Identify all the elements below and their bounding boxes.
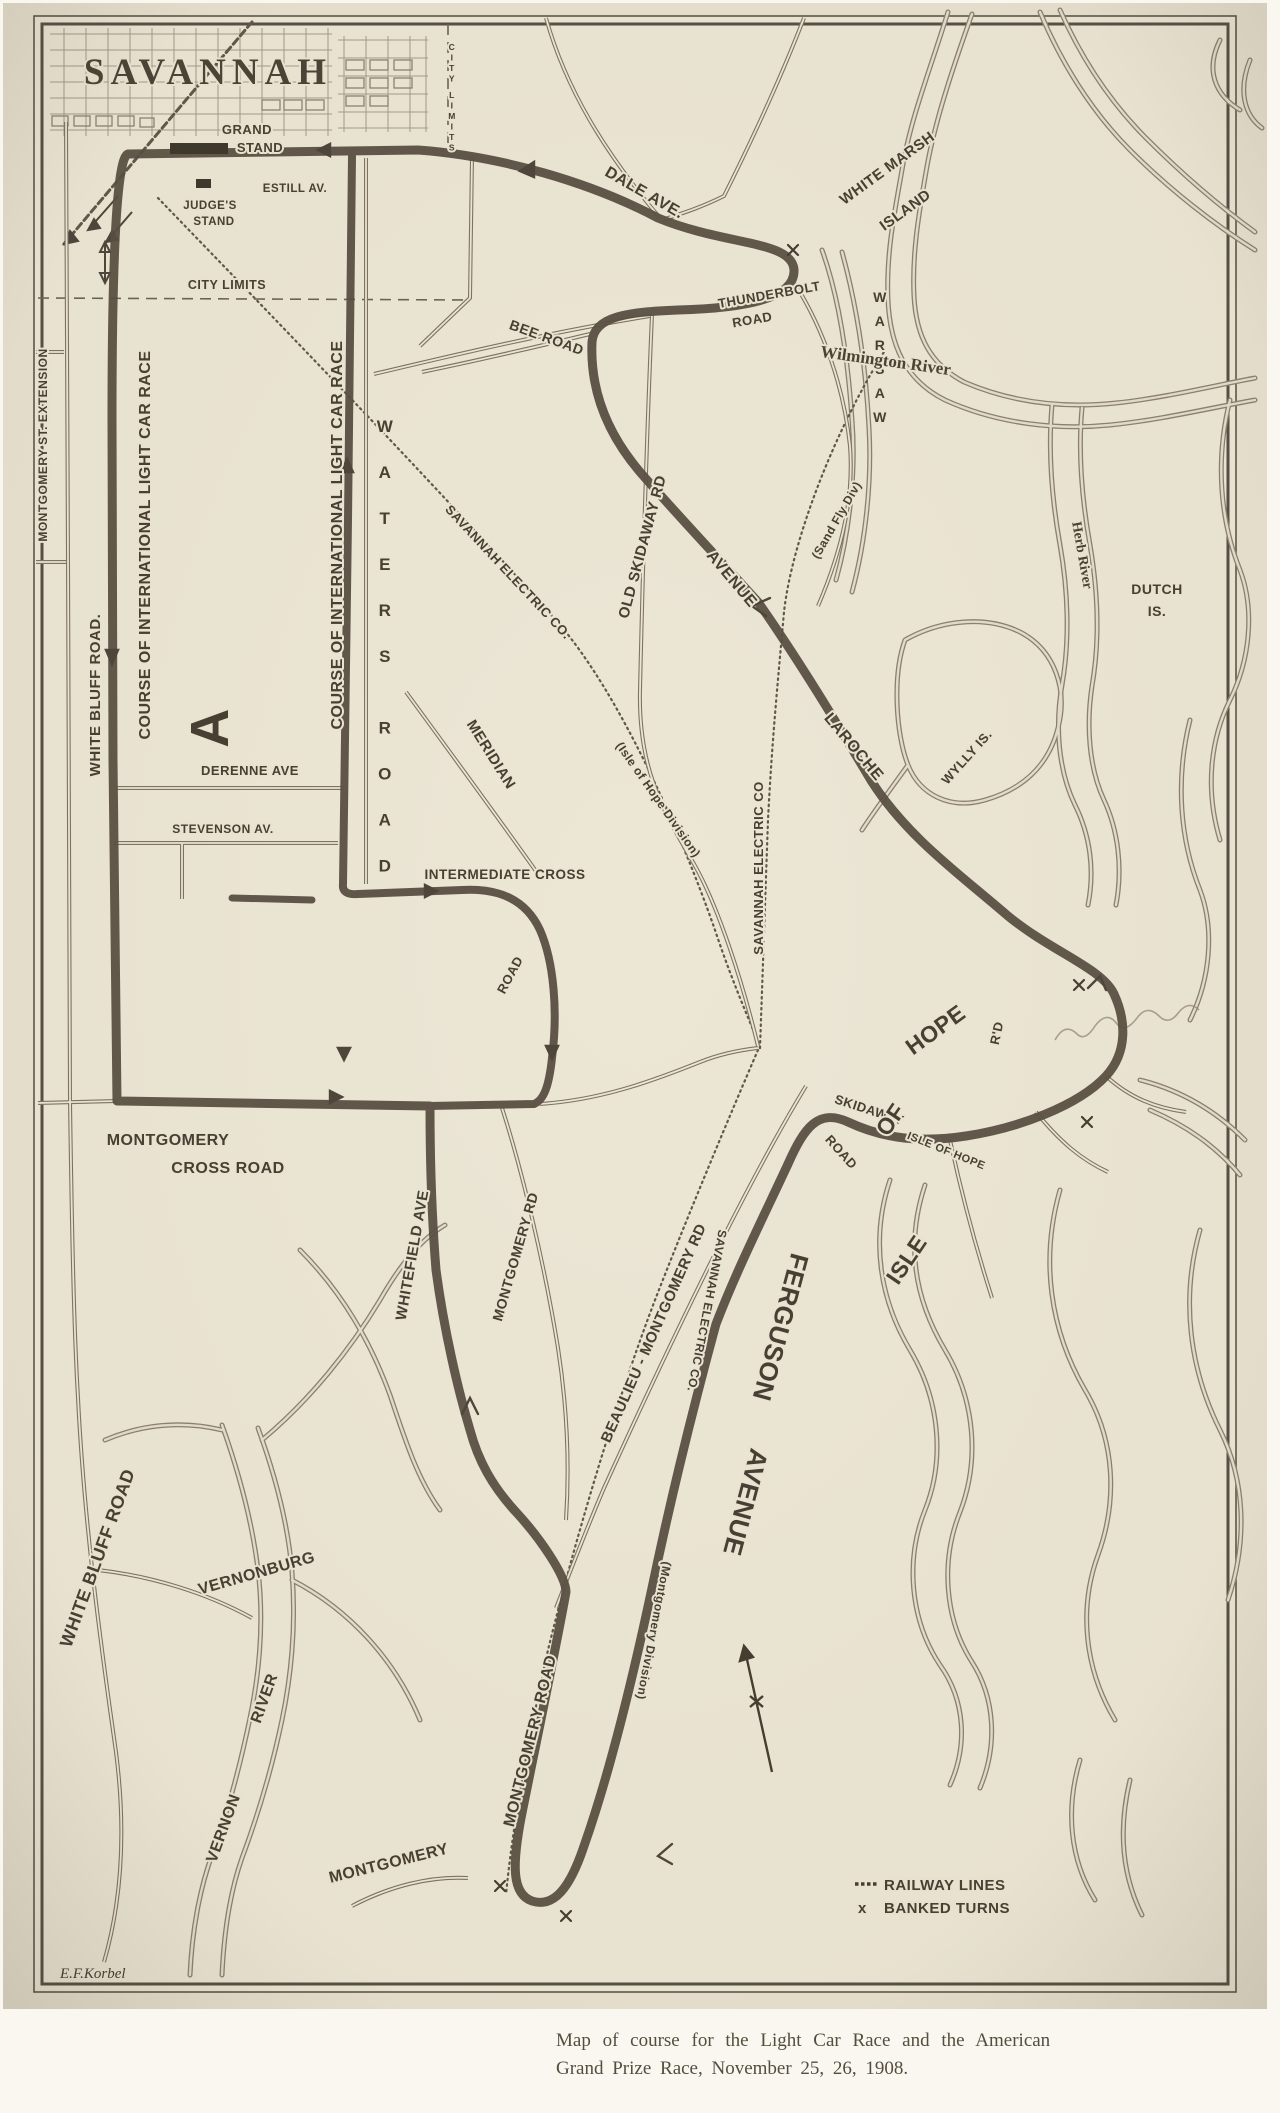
- caption-line2: Grand Prize Race, November 25, 26, 1908.: [556, 2058, 908, 2079]
- scanned-map-page: SAVANNAH GRAND STAND JUDGE'S STAND ESTIL…: [0, 0, 1280, 2113]
- savannah-race-map: SAVANNAH GRAND STAND JUDGE'S STAND ESTIL…: [0, 0, 1280, 2113]
- photo-vignette: [3, 3, 1267, 2009]
- caption-line1: Map of course for the Light Car Race and…: [556, 2030, 1051, 2051]
